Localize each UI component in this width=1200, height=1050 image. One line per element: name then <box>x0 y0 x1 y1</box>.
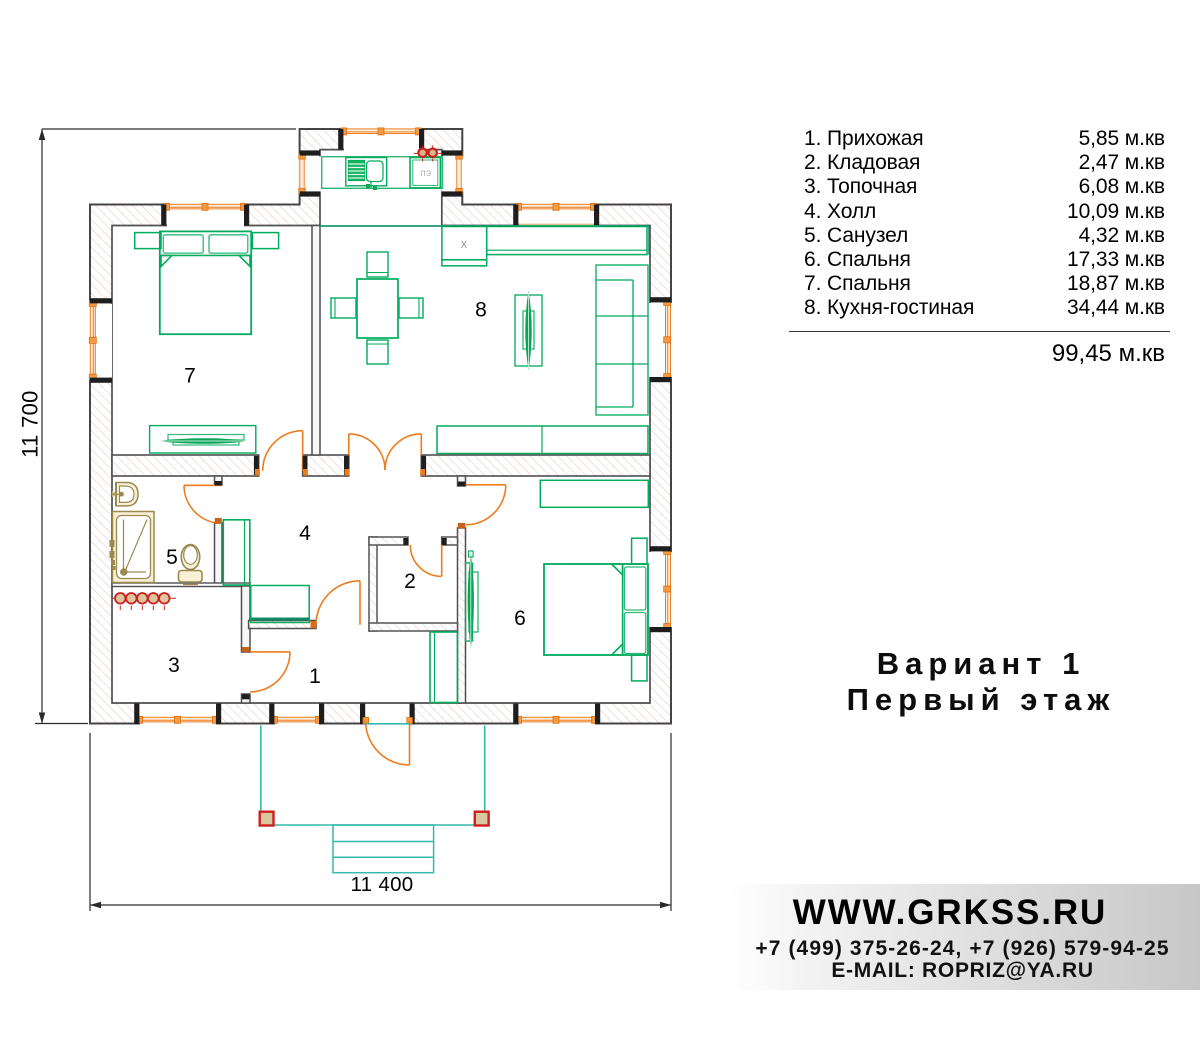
svg-text:11 700: 11 700 <box>18 390 43 457</box>
svg-text:11 400: 11 400 <box>351 873 414 896</box>
svg-text:8: 8 <box>475 299 487 322</box>
svg-text:5: 5 <box>166 546 178 569</box>
svg-text:3: 3 <box>168 654 180 677</box>
svg-text:7: 7 <box>184 365 196 388</box>
svg-text:4: 4 <box>299 522 311 545</box>
svg-text:x: x <box>461 236 468 251</box>
svg-text:1: 1 <box>309 665 321 688</box>
svg-text:пэ: пэ <box>420 168 432 179</box>
svg-text:2: 2 <box>404 570 416 593</box>
svg-text:6: 6 <box>514 607 526 630</box>
